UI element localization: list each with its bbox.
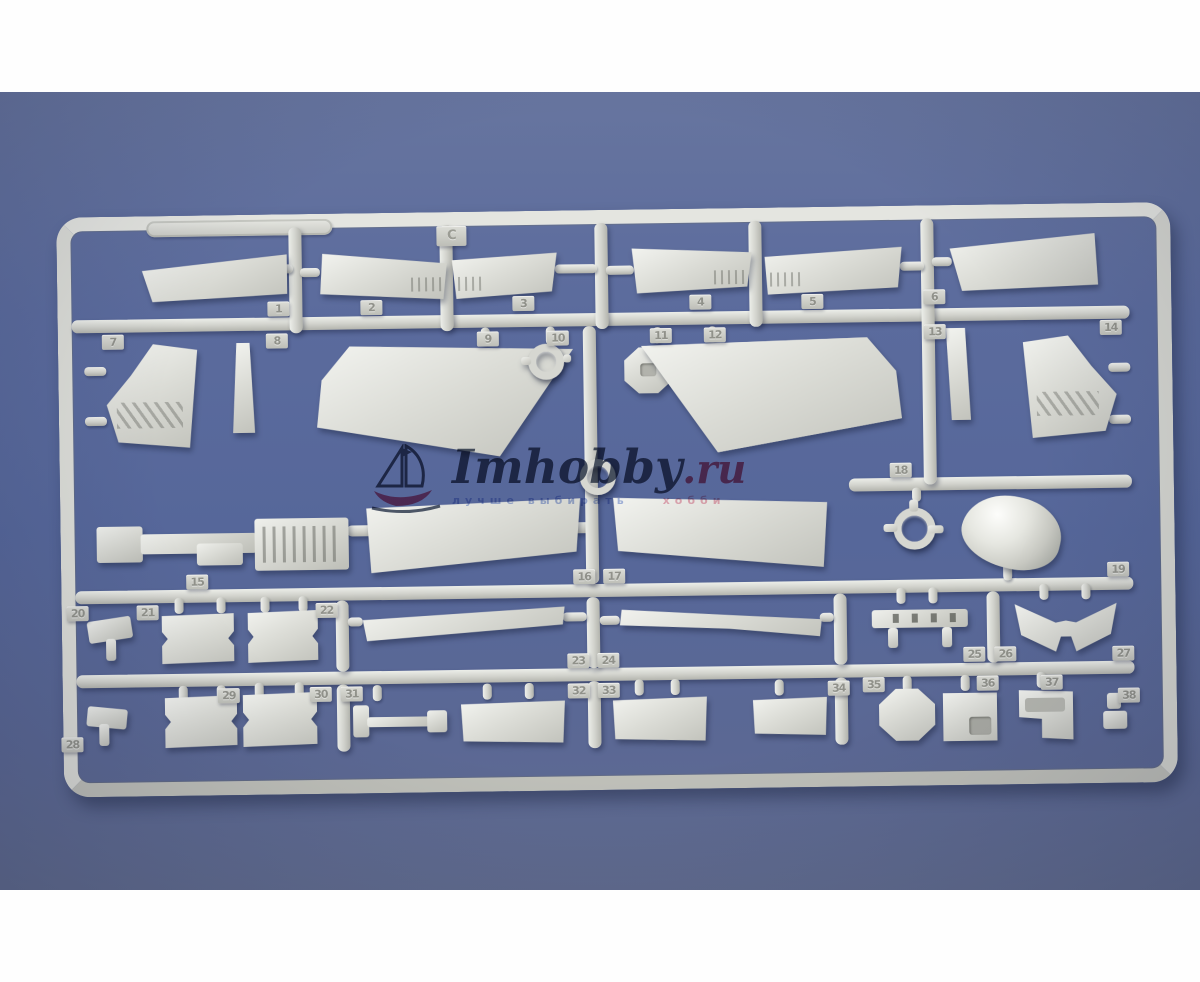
part-bracket-28: [83, 700, 134, 749]
part-slat-23: [363, 607, 565, 642]
sprue-gate: [300, 268, 320, 277]
sprue-gate: [348, 617, 363, 626]
part-tab-17: 17: [603, 569, 625, 584]
part-rack-25: [872, 605, 969, 652]
part-tab-15: 15: [186, 574, 208, 589]
mold-stamp-plate: [146, 219, 332, 238]
part-slat-24: [620, 605, 822, 642]
part-panel-2: [320, 252, 448, 301]
part-tab-11: 11: [650, 328, 672, 343]
part-tab-31: 31: [341, 686, 363, 701]
part-panel-5: [762, 247, 903, 295]
sprue-gate: [671, 679, 680, 695]
watermark-tld-text: .ru: [682, 446, 746, 493]
ship-logo-icon: [366, 444, 446, 518]
part-tab-35: 35: [863, 677, 885, 692]
sprue-gate: [563, 612, 587, 621]
part-yoke-18: [883, 499, 950, 554]
part-tab-28: 28: [61, 737, 83, 752]
sprue-gate: [555, 264, 597, 274]
sprue-letter-tab: C: [436, 226, 466, 246]
sprue-gate: [373, 685, 382, 701]
part-tab-5: 5: [801, 294, 823, 309]
part-tab-1: 1: [267, 301, 289, 316]
watermark-tagline-right: хобби: [663, 494, 726, 507]
sprue-gate: [174, 598, 183, 614]
part-tab-24: 24: [597, 653, 619, 668]
part-fin-7: [106, 344, 201, 449]
sprue-gate: [896, 588, 905, 604]
part-tab-19: 19: [1107, 562, 1129, 577]
part-tab-34: 34: [828, 681, 850, 696]
sprue-gate: [85, 417, 107, 426]
part-wishbone-27: [1015, 601, 1118, 652]
part-panel-6: [949, 233, 1098, 291]
watermark-tagline-left: лучше выбирать: [452, 494, 629, 507]
sprue-gate: [961, 675, 970, 691]
part-box-34: [753, 697, 828, 736]
part-strip-13: [946, 328, 971, 420]
part-octagon-35: [879, 688, 936, 741]
part-tab-29: 29: [218, 688, 240, 703]
part-tab-30: 30: [310, 687, 332, 702]
part-tab-26: 26: [994, 646, 1016, 661]
part-tab-10: 10: [547, 330, 569, 345]
sprue-gate: [600, 616, 620, 625]
sprue-gate: [483, 684, 492, 700]
part-bracket-20: [88, 612, 139, 661]
part-fin-14: [1020, 335, 1117, 438]
sprue-gate: [525, 683, 534, 699]
part-box-37: [1019, 689, 1074, 740]
part-tab-8: 8: [266, 333, 288, 348]
watermark: Imhobby.ru лучше выбиратьхобби: [366, 444, 866, 518]
part-rod-31: [353, 700, 448, 743]
part-tab-2: 2: [360, 300, 382, 315]
part-tab-9: 9: [477, 331, 499, 346]
part-tab-4: 4: [689, 294, 711, 309]
part-tab-7: 7: [102, 335, 124, 350]
sprue-gate: [900, 261, 924, 270]
part-tab-21: 21: [137, 605, 159, 620]
sprue-gate: [84, 367, 106, 376]
part-tab-38: 38: [1118, 687, 1140, 702]
part-tab-25: 25: [963, 647, 985, 662]
part-box-36: [943, 692, 998, 741]
part-tab-36: 36: [977, 675, 999, 690]
part-tab-22: 22: [316, 603, 338, 618]
part-wing-12: [641, 337, 903, 454]
part-strip-8: [232, 343, 255, 433]
part-tab-37: 37: [1041, 675, 1063, 690]
runner-vertical-g: [833, 594, 847, 665]
part-panel-4: [632, 247, 753, 294]
sprue-gate: [606, 266, 634, 275]
part-tab-18: 18: [890, 463, 912, 478]
part-panel-1: [142, 254, 288, 302]
part-tab-33: 33: [598, 683, 620, 698]
part-box-33: [613, 697, 708, 742]
part-tab-12: 12: [704, 327, 726, 342]
part-tab-6: 6: [923, 289, 945, 304]
runner-vertical-c: [594, 223, 608, 329]
part-tab-20: 20: [67, 606, 89, 621]
letterbox-bottom: [0, 890, 1200, 982]
photo-of-model-kit-sprue: C 1 2 3 4 5 6 7 8 9 10 11 12 13 14 15 16…: [0, 0, 1200, 982]
part-cockpit-assembly-15: [96, 508, 349, 574]
watermark-tagline: лучше выбиратьхобби: [452, 494, 746, 507]
part-tab-3: 3: [512, 296, 534, 311]
sprue-gate: [1081, 583, 1090, 599]
watermark-brand-text: Imhobby.ru: [452, 440, 746, 495]
part-nose-cone-19: [961, 484, 1066, 581]
part-tab-32: 32: [568, 683, 590, 698]
runner-vertical-a: [288, 227, 302, 333]
part-tab-14: 14: [1100, 320, 1122, 335]
photo-background: C 1 2 3 4 5 6 7 8 9 10 11 12 13 14 15 16…: [0, 92, 1200, 890]
part-plate-21: [162, 613, 235, 664]
part-tab-27: 27: [1112, 646, 1134, 661]
sprue-gate: [1039, 584, 1048, 600]
letterbox-top: [0, 0, 1200, 92]
part-tab-13: 13: [924, 324, 946, 339]
sprue-gate: [635, 679, 644, 695]
sprue-gate: [775, 679, 784, 695]
sprue-gate: [928, 587, 937, 603]
part-tab-23: 23: [567, 653, 589, 668]
part-tab-16: 16: [573, 569, 595, 584]
part-panel-3: [452, 253, 558, 299]
part-plate-22: [248, 610, 319, 663]
part-box-32: [461, 701, 566, 744]
part-plate-30: [243, 692, 318, 747]
sprue-gate: [216, 597, 225, 613]
